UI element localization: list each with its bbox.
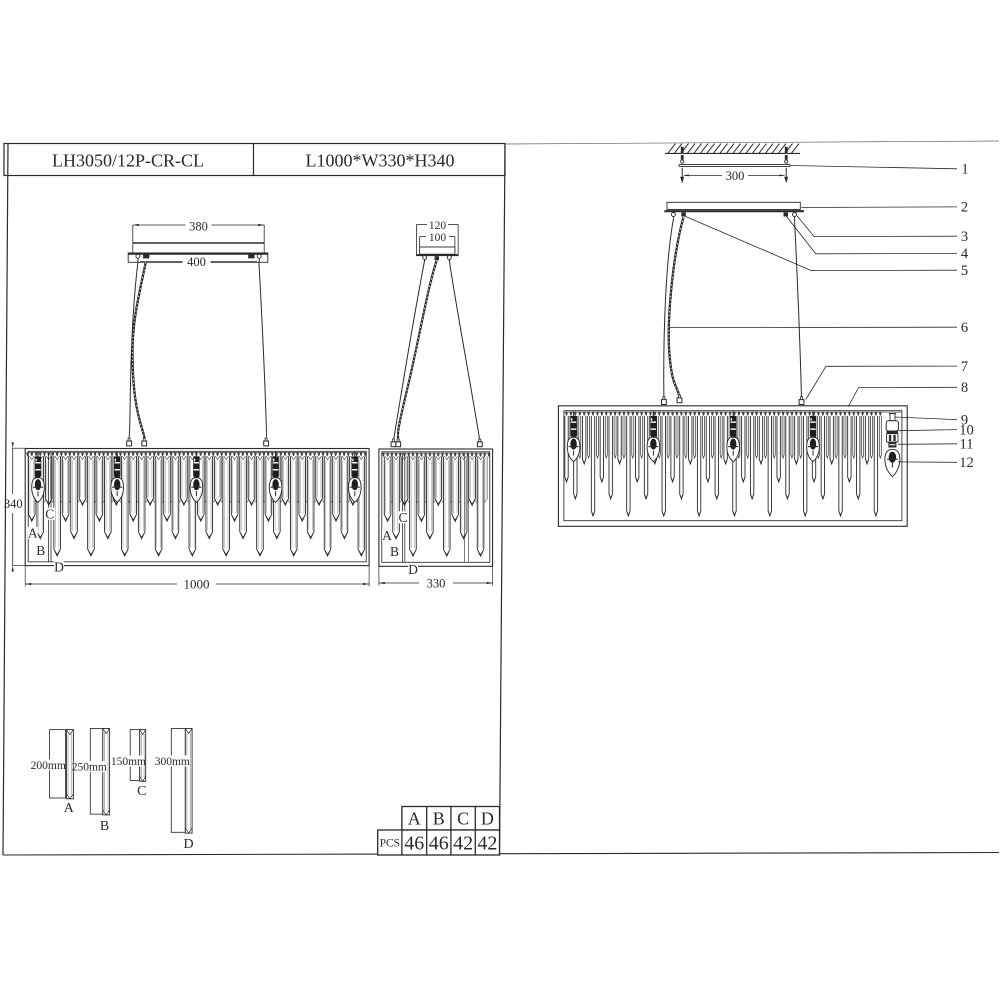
svg-text:8: 8 [961,380,968,396]
svg-text:380: 380 [189,220,208,234]
svg-text:4: 4 [961,246,969,262]
svg-text:5: 5 [961,263,968,279]
svg-text:100: 100 [429,232,447,244]
svg-text:300mm: 300mm [155,756,190,768]
svg-text:C: C [457,809,469,829]
svg-text:12: 12 [959,455,974,471]
svg-text:3: 3 [961,229,968,245]
svg-text:D: D [183,837,193,852]
svg-text:11: 11 [960,437,974,453]
svg-text:PCS: PCS [380,838,400,850]
svg-text:400: 400 [187,255,206,269]
svg-text:250mm: 250mm [72,762,107,774]
svg-text:42: 42 [453,833,473,855]
svg-text:C: C [137,784,146,799]
svg-text:150mm: 150mm [111,756,146,768]
svg-text:A: A [28,526,38,541]
svg-text:B: B [390,544,399,559]
svg-text:6: 6 [961,320,968,336]
svg-text:330: 330 [427,577,446,591]
svg-text:C: C [45,507,54,522]
svg-text:7: 7 [961,359,968,375]
svg-text:42: 42 [477,833,497,855]
svg-text:46: 46 [429,833,449,855]
svg-text:B: B [433,809,445,829]
svg-text:A: A [408,809,421,829]
svg-text:300: 300 [726,169,745,183]
svg-text:1000: 1000 [184,577,210,592]
svg-text:C: C [398,510,407,525]
svg-text:L1000*W330*H340: L1000*W330*H340 [306,151,455,171]
svg-text:200mm: 200mm [31,760,66,772]
svg-text:A: A [64,801,75,816]
svg-text:B: B [100,819,109,834]
svg-text:120: 120 [429,220,447,232]
svg-text:D: D [481,809,494,829]
svg-text:D: D [54,560,64,575]
svg-text:A: A [382,528,392,543]
svg-text:1: 1 [961,162,968,178]
svg-text:46: 46 [404,833,424,855]
svg-text:340: 340 [4,497,23,511]
svg-text:D: D [408,562,418,577]
svg-text:B: B [36,543,45,558]
svg-text:2: 2 [961,200,968,216]
svg-text:LH3050/12P-CR-CL: LH3050/12P-CR-CL [52,151,204,171]
